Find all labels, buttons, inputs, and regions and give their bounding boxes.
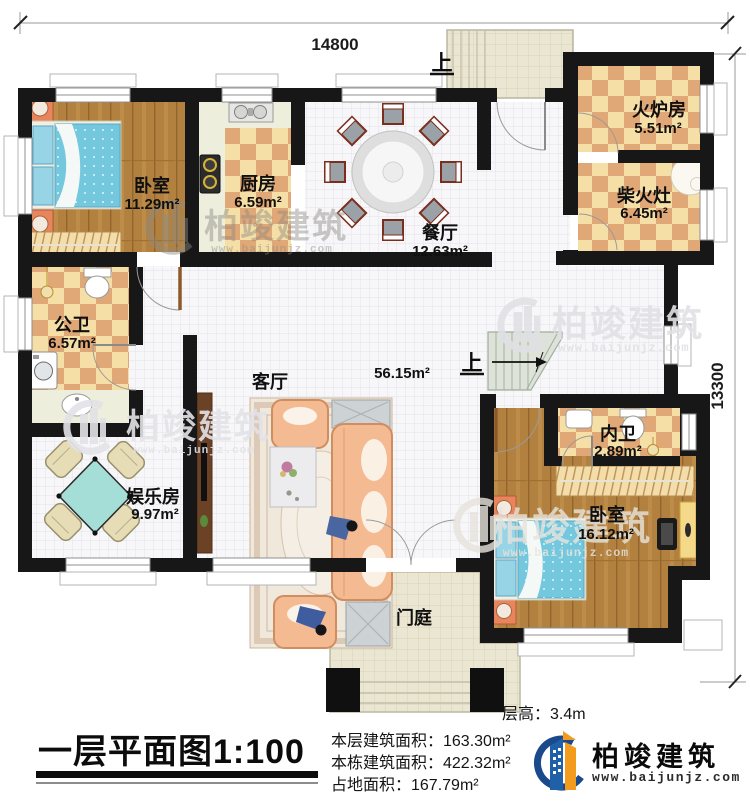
stair-up-label-interior: 上 xyxy=(462,352,483,375)
room-label-bedroom-nw: 卧室 xyxy=(134,175,170,196)
wardrobe-se xyxy=(556,466,694,496)
room-area-kitchen: 6.59m² xyxy=(234,194,282,211)
svg-text:柏竣建筑: 柏竣建筑 xyxy=(204,207,348,246)
room-label-game-room: 娱乐房 xyxy=(126,486,180,507)
porch-pillar-left xyxy=(326,668,360,712)
svg-text:柏竣建筑: 柏竣建筑 xyxy=(552,303,704,344)
company-logo: 柏竣建筑 www.baijunjz.com xyxy=(537,731,740,790)
logo-brand-text: 柏竣建筑 xyxy=(592,741,720,772)
stair-up-label-rear: 上 xyxy=(432,52,453,75)
room-area-game-room: 9.97m² xyxy=(131,506,179,523)
room-area-ensuite-bath: 2.89m² xyxy=(594,443,642,460)
room-label-living: 客厅 xyxy=(252,371,288,392)
dim-width-label: 14800 xyxy=(311,35,358,54)
stat-building-area: 本栋建筑面积：422.32m² xyxy=(331,754,511,772)
room-label-furnace: 火炉房 xyxy=(632,99,686,120)
watermark-3: 柏竣建筑 www.baijunjz.com xyxy=(67,403,270,457)
stat-footprint-area: 占地面积：167.79m² xyxy=(331,776,479,794)
porch-pillar-right xyxy=(470,668,504,712)
room-label-wood-stove: 柴火灶 xyxy=(616,185,671,206)
svg-text:www.baijunjz.com: www.baijunjz.com xyxy=(133,445,255,457)
room-label-kitchen: 厨房 xyxy=(240,173,276,194)
svg-text:柏竣建筑: 柏竣建筑 xyxy=(126,407,270,446)
logo-url-text: www.baijunjz.com xyxy=(592,770,741,785)
sofa-set xyxy=(250,398,392,648)
stat-floor-area: 本层建筑面积：163.30m² xyxy=(331,732,511,750)
shower-head xyxy=(648,445,659,456)
room-label-bedroom-se: 卧室 xyxy=(589,504,625,525)
title-underline xyxy=(36,771,318,778)
room-label-porch: 门庭 xyxy=(396,607,432,628)
room-area-bedroom-se: 16.12m² xyxy=(578,526,634,543)
floor-plan-svg: 14800 13300 xyxy=(0,0,750,802)
floor-plan-page: 14800 13300 xyxy=(0,0,750,802)
room-area-living: 56.15m² xyxy=(374,365,430,382)
floor-height-note: 层高：3.4m xyxy=(502,705,586,723)
dim-height-label: 13300 xyxy=(708,362,727,409)
room-label-dining: 餐厅 xyxy=(421,222,458,243)
watermark-2: 柏竣建筑 www.baijunjz.com xyxy=(501,301,704,355)
svg-text:www.baijunjz.com: www.baijunjz.com xyxy=(503,547,629,560)
svg-text:www.baijunjz.com: www.baijunjz.com xyxy=(211,244,333,256)
room-label-public-bath: 公卫 xyxy=(54,315,90,335)
room-area-furnace: 5.51m² xyxy=(634,120,682,137)
room-area-wood-stove: 6.45m² xyxy=(620,205,668,222)
ceiling-lamp xyxy=(41,286,53,298)
plant xyxy=(200,515,208,527)
rear-steps xyxy=(447,30,573,98)
logo-roof-icon xyxy=(563,731,576,740)
room-area-bedroom-nw: 11.29m² xyxy=(124,196,179,213)
ensuite-basin xyxy=(566,410,592,428)
plan-title: 一层平面图1:100 xyxy=(38,733,305,771)
svg-text:www.baijunjz.com: www.baijunjz.com xyxy=(558,341,689,355)
room-label-ensuite-bath: 内卫 xyxy=(600,423,636,444)
room-area-public-bath: 6.57m² xyxy=(48,335,96,352)
toilet xyxy=(85,276,109,298)
title-block: 一层平面图1:100 层高：3.4m 本层建筑面积：163.30m² 本栋建筑面… xyxy=(36,705,741,794)
room-area-dining: 12.63m² xyxy=(412,243,468,260)
